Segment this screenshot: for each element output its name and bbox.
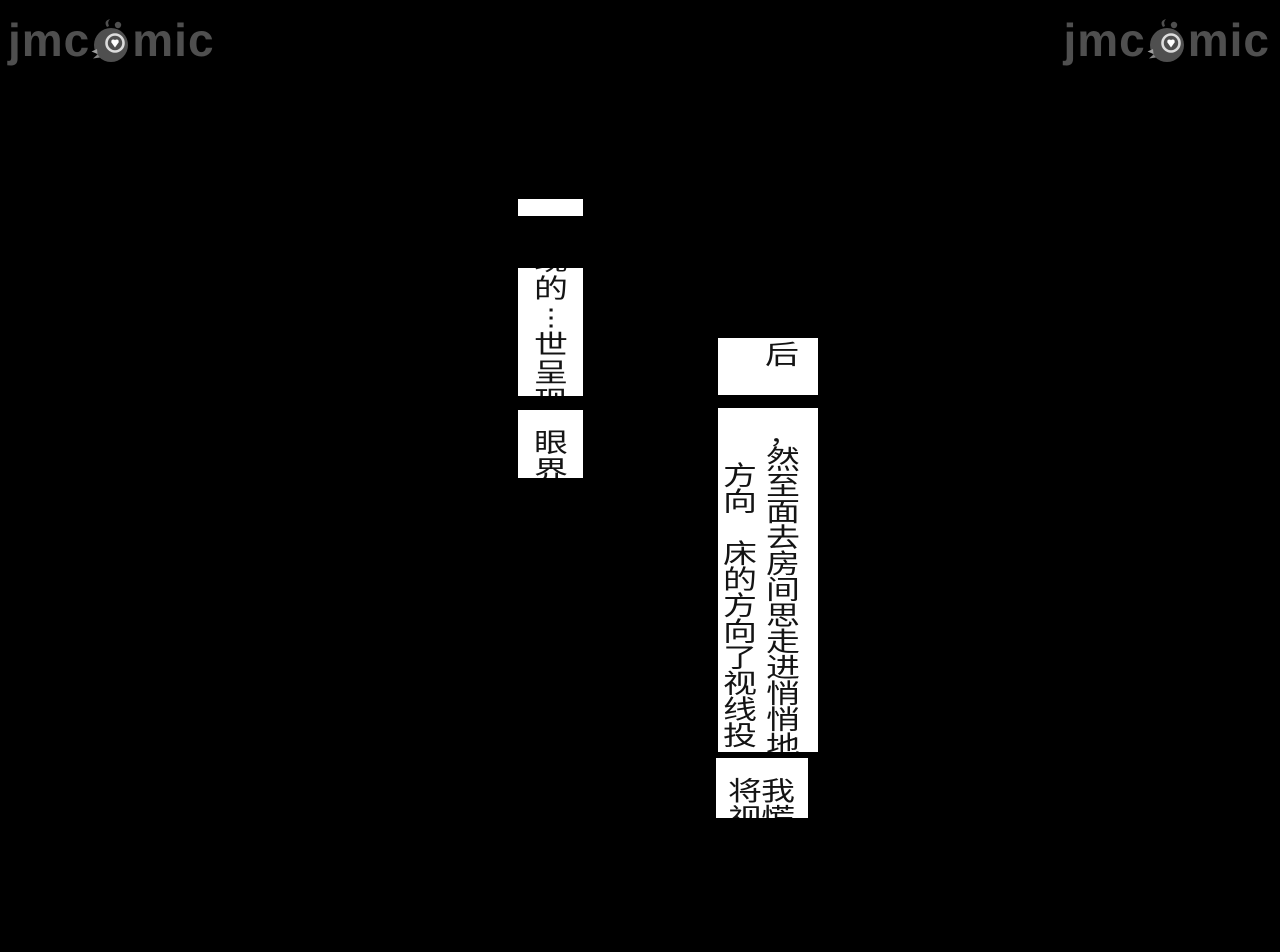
logo-text-prefix: jmc — [8, 17, 90, 63]
vertical-text-column: 我慌 — [759, 779, 797, 818]
cjk-char: 向 — [721, 493, 759, 513]
cjk-char — [721, 415, 759, 435]
cjk-char: 了 — [721, 649, 759, 669]
vertical-text-column: 一，然至面去房间思走进悄悄地 — [764, 408, 802, 752]
vertical-text-column: 后 — [763, 342, 801, 370]
cjk-char: 眼 — [532, 433, 570, 455]
cjk-char: 间 — [764, 581, 802, 601]
vertical-text-column: 现的⋮世呈现 — [532, 268, 570, 396]
cjk-char: ， — [764, 425, 802, 445]
cjk-char: 将 — [726, 782, 764, 803]
cjk-char: 悄 — [764, 711, 802, 731]
speech-bubble-left-main: 现的⋮世呈现 — [518, 268, 583, 396]
speech-bubble-right-main: 一，然至面去房间思走进悄悄地 方向床的方向了视线投 — [718, 408, 818, 752]
cjk-char: 投 — [721, 727, 759, 747]
speech-bubble-right-top: 后 — [718, 338, 818, 395]
cjk-char: 呈 — [532, 363, 570, 385]
vertical-text-column: 方向床的方向了视线投 — [721, 412, 759, 750]
logo-text-suffix: mic — [1188, 17, 1270, 63]
speech-bubble-left-lower: 眼界 — [518, 410, 583, 478]
cjk-char: 向 — [721, 623, 759, 643]
comic-page: jmc mic jmc — [0, 0, 1280, 952]
cjk-char: 的 — [721, 571, 759, 591]
vertical-text-column: 眼界 — [532, 430, 570, 478]
bird-mascot-icon — [91, 18, 131, 64]
bird-mascot-icon — [1147, 18, 1187, 64]
cjk-char: 视 — [726, 809, 764, 818]
cjk-char — [721, 519, 759, 539]
cjk-char: 方 — [721, 467, 759, 487]
cjk-char: 床 — [721, 545, 759, 565]
cjk-char: 至 — [764, 477, 802, 497]
cjk-char: 的 — [532, 279, 570, 301]
cjk-char: 然 — [764, 451, 802, 471]
speech-bubble-right-bottom: 我慌 将视 — [716, 758, 808, 818]
logo-text-suffix: mic — [132, 17, 214, 63]
cjk-char: 界 — [532, 461, 570, 478]
site-logo-watermark-left: jmc mic — [8, 16, 215, 64]
cjk-char: 思 — [764, 607, 802, 627]
cjk-char: 方 — [721, 597, 759, 617]
cjk-char: 走 — [764, 633, 802, 653]
cjk-char — [721, 441, 759, 461]
cjk-char: 现 — [532, 391, 570, 396]
cjk-char: 后 — [763, 345, 801, 367]
site-logo-watermark-right: jmc mic — [1063, 16, 1270, 64]
cjk-char: ⋮ — [532, 307, 570, 329]
cjk-char: 去 — [764, 529, 802, 549]
logo-text-prefix: jmc — [1063, 17, 1145, 63]
cjk-char: 线 — [721, 701, 759, 721]
cjk-char: 进 — [764, 659, 802, 679]
speech-bubble-strip — [518, 199, 583, 216]
cjk-char: 悄 — [764, 685, 802, 705]
cjk-char: 世 — [532, 335, 570, 357]
cjk-char: 地 — [764, 737, 802, 752]
cjk-char: 视 — [721, 675, 759, 695]
cjk-char: 房 — [764, 555, 802, 575]
cjk-char: 现 — [532, 268, 570, 273]
cjk-char: 慌 — [759, 809, 797, 818]
cjk-char: 一 — [764, 408, 802, 419]
cjk-char: 我 — [759, 782, 797, 803]
vertical-text-column: 将视 — [726, 779, 764, 818]
cjk-char: 面 — [764, 503, 802, 523]
